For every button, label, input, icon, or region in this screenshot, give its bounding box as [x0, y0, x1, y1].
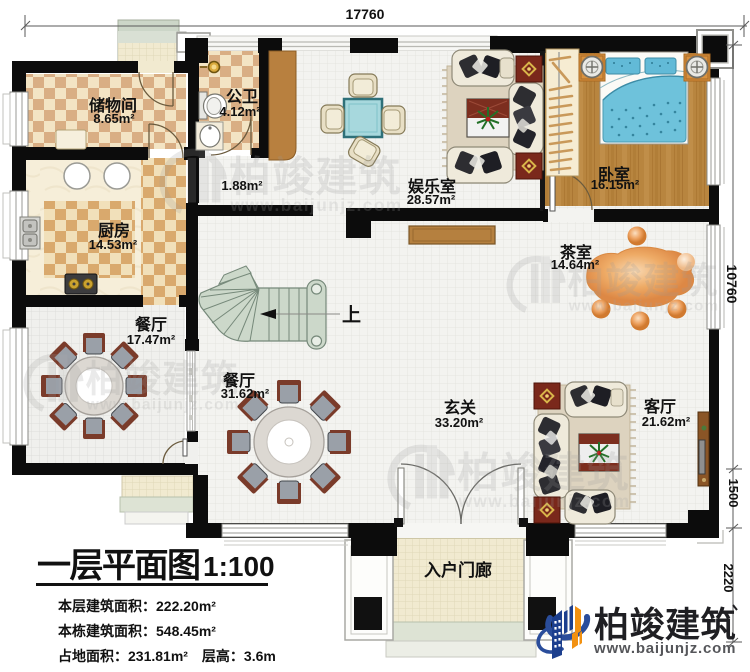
svg-text:www.baijunjz.com: www.baijunjz.com: [593, 640, 736, 657]
svg-text:本栋建筑面积：548.45m²: 本栋建筑面积：548.45m²: [58, 623, 216, 639]
svg-text:1500: 1500: [726, 479, 741, 508]
svg-text:www.baijunjz.com: www.baijunjz.com: [568, 297, 720, 314]
svg-text:4.12m²: 4.12m²: [219, 104, 261, 119]
svg-text:16.15m²: 16.15m²: [591, 177, 640, 192]
svg-text:17760: 17760: [346, 6, 385, 22]
svg-text:柏竣建筑: 柏竣建筑: [594, 605, 736, 645]
svg-text:17.47m²: 17.47m²: [127, 332, 176, 347]
svg-text:入户门廊: 入户门廊: [424, 560, 492, 580]
svg-text:33.20m²: 33.20m²: [435, 415, 484, 430]
svg-text:21.62m²: 21.62m²: [642, 414, 691, 429]
svg-text:www.baijunjz.com: www.baijunjz.com: [458, 491, 631, 511]
svg-text:占地面积：231.81m² 层高：3.6m: 占地面积：231.81m² 层高：3.6m: [58, 648, 276, 664]
svg-text:1:100: 1:100: [203, 551, 275, 582]
svg-text:8.65m²: 8.65m²: [93, 111, 135, 126]
svg-text:14.53m²: 14.53m²: [89, 237, 138, 252]
svg-text:柏竣建筑: 柏竣建筑: [85, 358, 239, 400]
svg-text:一层平面图: 一层平面图: [37, 547, 200, 585]
svg-text:10760: 10760: [724, 265, 740, 304]
svg-text:1.88m²: 1.88m²: [221, 178, 263, 193]
svg-text:28.57m²: 28.57m²: [407, 192, 456, 207]
svg-text:上: 上: [342, 304, 361, 326]
svg-text:2220: 2220: [721, 564, 736, 593]
svg-text:14.64m²: 14.64m²: [551, 257, 600, 272]
svg-text:本层建筑面积：222.20m²: 本层建筑面积：222.20m²: [58, 598, 216, 614]
svg-text:31.62m²: 31.62m²: [221, 386, 270, 401]
svg-text:柏竣建筑: 柏竣建筑: [457, 449, 630, 496]
svg-text:www.baijunjz.com: www.baijunjz.com: [230, 195, 403, 215]
svg-text:www.baijunjz.com: www.baijunjz.com: [86, 396, 240, 413]
